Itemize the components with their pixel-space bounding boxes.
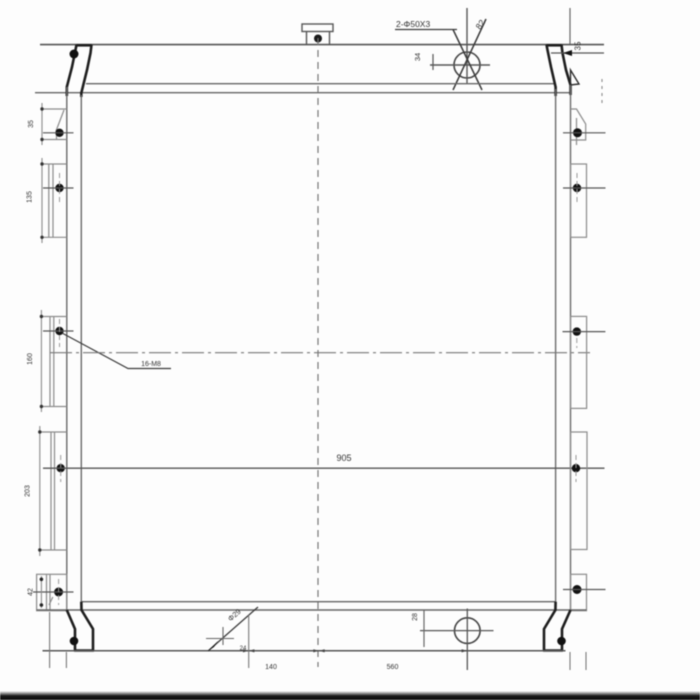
svg-text:35: 35	[574, 41, 583, 50]
svg-text:160: 160	[27, 353, 34, 365]
svg-text:16-M8: 16-M8	[141, 361, 161, 368]
svg-text:34: 34	[413, 53, 422, 61]
svg-text:560: 560	[387, 664, 399, 671]
svg-text:135: 135	[27, 191, 34, 203]
svg-text:42: 42	[28, 588, 35, 596]
svg-text:905: 905	[336, 453, 351, 463]
svg-text:2-Φ50X3: 2-Φ50X3	[396, 19, 430, 29]
svg-text:28: 28	[412, 613, 419, 621]
svg-text:35: 35	[28, 120, 35, 128]
svg-text:140: 140	[265, 664, 277, 671]
svg-text:203: 203	[25, 485, 32, 497]
